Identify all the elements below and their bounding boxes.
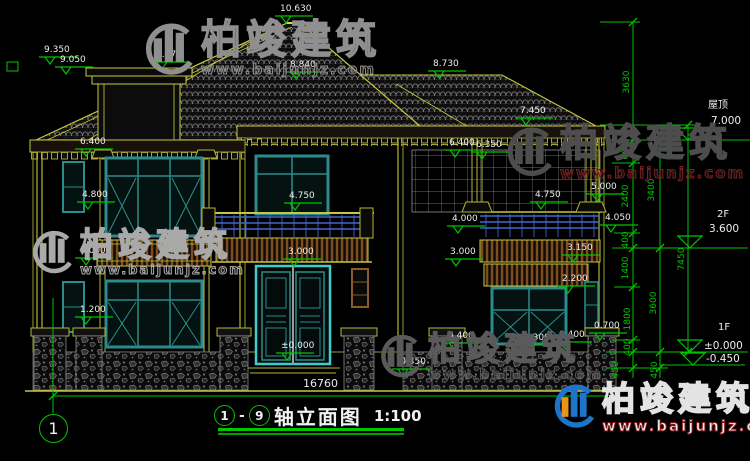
level-value: 0.400 (559, 330, 585, 340)
level-marker: 4.050 (605, 214, 639, 233)
brand-watermark: 柏竣建筑www.baijunjz.com (28, 228, 245, 281)
axis-bubble-to: 9 (249, 405, 270, 426)
level-value: 4.750 (535, 190, 561, 200)
axis-bubble-1: 1 (39, 414, 68, 443)
level-value: 3.000 (80, 246, 106, 256)
storey-label: -0.450 (706, 353, 740, 365)
level-value: 4.750 (289, 191, 315, 201)
brand-logo-icon (550, 382, 596, 435)
dimension-value: 3600 (649, 292, 659, 315)
dimension-value: 450 (611, 361, 621, 378)
level-value: 6.400 (80, 137, 106, 147)
level-marker: 9.050 (60, 56, 94, 75)
level-value: 3.150 (567, 243, 593, 253)
level-marker: 3.000 (80, 247, 114, 266)
level-marker: 4.000 (452, 215, 486, 234)
cad-canvas: 16760 1 1 - 9 轴立面图 1:100 10.6309.3509.05… (0, 0, 750, 461)
watermark-text: 柏竣建筑www.baijunjz.com (560, 124, 745, 182)
level-marker: 6.400 (80, 138, 114, 157)
level-marker: 0.400 (448, 332, 482, 351)
level-value: 0.700 (594, 321, 620, 331)
watermark-brand: 柏竣建筑 (602, 382, 750, 415)
axis-bubble-label: 1 (48, 419, 58, 438)
level-value: 4.050 (605, 213, 631, 223)
level-marker: 2.200 (562, 275, 596, 294)
storey-label: 1F (718, 322, 730, 333)
dimension-value: 3630 (622, 71, 632, 94)
annotation-overlay: 16760 1 1 - 9 轴立面图 1:100 10.6309.3509.05… (0, 0, 750, 461)
level-marker: 4.800 (82, 191, 116, 210)
title-underline-top (218, 428, 404, 431)
level-value: 9.050 (60, 55, 86, 65)
level-value: 8.840 (290, 60, 316, 70)
level-marker: 4.750 (535, 191, 569, 210)
level-marker: 3.000 (450, 248, 484, 267)
dimension-value: 450 (650, 361, 660, 378)
level-marker: 10.630 (280, 5, 314, 24)
dimension-value: 600 (621, 142, 631, 159)
dimension-value: 3400 (647, 179, 657, 202)
level-value: 0.300 (524, 333, 550, 343)
watermark-url: www.baijunjz.com (602, 417, 750, 435)
dimension-value: 7450 (677, 248, 687, 271)
level-value: -0.450 (397, 357, 426, 367)
storey-label: 屋顶 (708, 96, 728, 111)
level-marker: -0.450 (397, 358, 431, 377)
level-marker: 8.730 (433, 60, 467, 79)
drawing-title-block: 1 - 9 轴立面图 1:100 (214, 401, 422, 430)
title-underline-bottom (218, 433, 404, 435)
level-value: 6.350 (476, 140, 502, 150)
level-value: 0.400 (448, 331, 474, 341)
total-width-dimension: 16760 (303, 377, 338, 390)
storey-label: ±0.000 (704, 340, 743, 352)
dimension-value: 2400 (621, 185, 631, 208)
level-marker: 3.150 (567, 244, 601, 263)
dimension-value: 400 (623, 338, 633, 355)
watermark-url: www.baijunjz.com (428, 367, 603, 383)
drawing-title-text: 轴立面图 (274, 401, 362, 430)
storey-label: 3.600 (709, 223, 739, 235)
level-value: 4.800 (82, 190, 108, 200)
level-value: 6.400 (449, 138, 475, 148)
level-value: 9.350 (44, 45, 70, 55)
level-value: ±0.000 (281, 341, 314, 351)
level-marker: 4.750 (289, 192, 323, 211)
level-value: 3.000 (450, 247, 476, 257)
dimension-value: 1800 (623, 308, 633, 331)
watermark-brand: 柏竣建筑 (201, 20, 381, 60)
level-marker: 0.400 (559, 331, 593, 350)
brand-logo-icon (28, 228, 74, 281)
storey-label: 7.000 (711, 115, 741, 127)
level-value: 4.000 (452, 214, 478, 224)
dimension-value: 400 (621, 231, 631, 248)
level-marker: 6.350 (476, 141, 510, 160)
storey-label: 2F (717, 209, 729, 220)
dimension-value: 1400 (621, 257, 631, 280)
level-value: 10.630 (280, 4, 312, 14)
watermark-brand: 柏竣建筑 (560, 124, 745, 162)
axis-range-separator: - (239, 408, 245, 424)
watermark-text: 柏竣建筑www.baijunjz.com (602, 382, 750, 435)
level-marker: 5.000 (591, 183, 625, 202)
level-marker: 9.170 (156, 51, 190, 70)
level-value: 1.200 (80, 305, 106, 315)
level-value: 7.450 (520, 106, 546, 116)
level-value: 2.200 (562, 274, 588, 284)
level-value: 8.730 (433, 59, 459, 69)
level-value: 3.000 (288, 247, 314, 257)
axis-bubble-from: 1 (214, 405, 235, 426)
level-value: 5.000 (591, 182, 617, 192)
drawing-scale: 1:100 (374, 407, 422, 425)
level-marker: 8.840 (290, 61, 324, 80)
brand-watermark: 柏竣建筑www.baijunjz.com (550, 382, 750, 435)
level-marker: ±0.000 (281, 342, 315, 361)
level-marker: 7.450 (520, 107, 554, 126)
level-marker: 1.200 (80, 306, 114, 325)
level-marker: 3.000 (288, 248, 322, 267)
level-value: 9.170 (156, 50, 182, 60)
